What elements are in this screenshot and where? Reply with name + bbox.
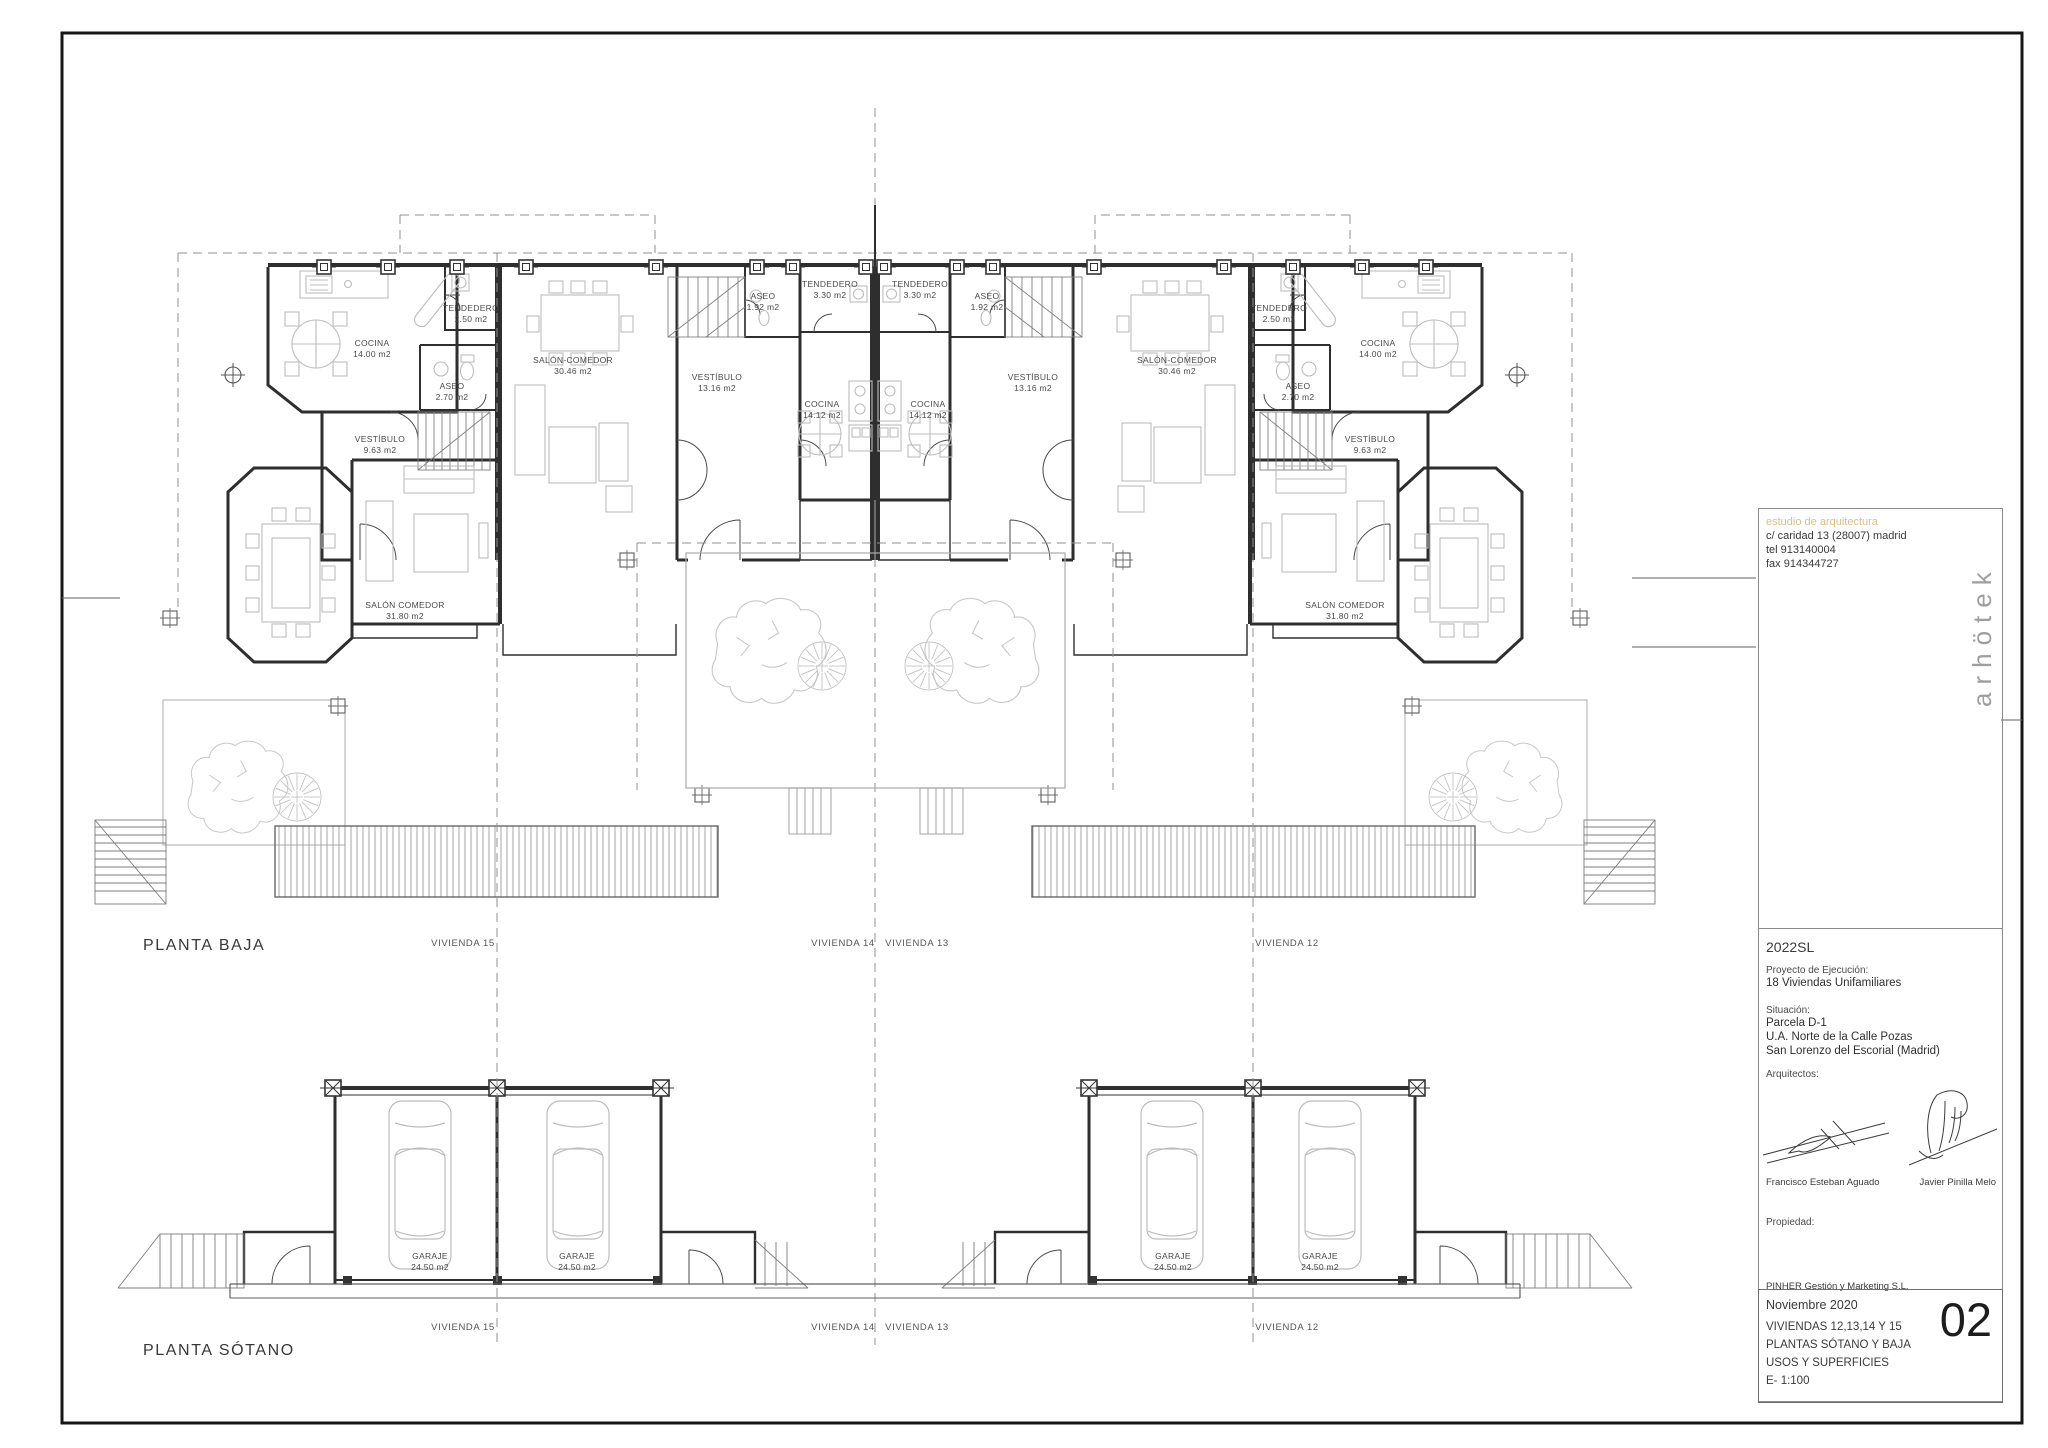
- architect-1-name: Francisco Esteban Aguado: [1766, 1177, 1880, 1188]
- plot-boundary-lines: [62, 578, 2022, 1298]
- project-label: Proyecto de Ejecución:: [1766, 965, 1901, 976]
- room-area: 13.16 m2: [698, 383, 736, 393]
- room-label: COCINA: [1361, 338, 1396, 348]
- sheet-number: 02: [1940, 1292, 1992, 1347]
- exterior-stairs: [95, 820, 166, 904]
- room-area: 13.16 m2: [1014, 383, 1052, 393]
- room-area: 1.92 m2: [971, 302, 1004, 312]
- drawing-line1: VIVIENDAS 12,13,14 Y 15: [1766, 1318, 1911, 1336]
- room-area: 14.12 m2: [803, 410, 841, 420]
- vivienda-label: VIVIENDA 14: [811, 938, 875, 949]
- plan-title-baja: PLANTA BAJA: [143, 937, 265, 954]
- drawing-line2: PLANTAS SÓTANO Y BAJA: [1766, 1336, 1911, 1354]
- garden-plot: [163, 700, 345, 845]
- signature-1: [1763, 1121, 1889, 1163]
- room-area: 9.63 m2: [1354, 445, 1387, 455]
- room-label: SALÓN COMEDOR: [1305, 600, 1384, 610]
- arhotek-logo: arhötek: [1967, 517, 1998, 707]
- room-area: 24.50 m2: [411, 1262, 449, 1272]
- sheet-frame: [62, 33, 2022, 1423]
- room-label: TENDEDERO: [802, 279, 858, 289]
- garden-steps: [789, 788, 963, 834]
- room-label: VESTÍBULO: [1345, 434, 1395, 444]
- room-label: GARAJE: [559, 1251, 595, 1261]
- room-label: TENDEDERO: [1251, 303, 1307, 313]
- room-area: 2.70 m2: [1282, 392, 1315, 402]
- situation-line2: U.A. Norte de la Calle Pozas: [1766, 1030, 1940, 1044]
- title-block: estudio de arquitectura c/ caridad 13 (2…: [1758, 508, 2003, 1402]
- room-area: 30.46 m2: [554, 366, 592, 376]
- floor-plan-drawing: COCINA 14.00 m2 TENDEDERO 2.50 m2 ASEO 2…: [0, 0, 2048, 1448]
- vivienda-label: VIVIENDA 12: [1255, 1322, 1319, 1333]
- room-area: 14.00 m2: [1359, 349, 1397, 359]
- vivienda-label: VIVIENDA 13: [885, 1322, 949, 1333]
- property-label: Propiedad:: [1766, 1217, 1814, 1228]
- room-area: 24.50 m2: [1154, 1262, 1192, 1272]
- project-code: 2022SL: [1766, 939, 1814, 955]
- signatures: [1759, 1081, 2002, 1173]
- room-area: 31.80 m2: [1326, 611, 1364, 621]
- room-label: VESTÍBULO: [355, 434, 405, 444]
- title-block-drawing-info: Noviembre 2020 02 VIVIENDAS 12,13,14 Y 1…: [1758, 1289, 2003, 1403]
- furniture: [246, 270, 872, 637]
- room-label: COCINA: [805, 399, 840, 409]
- vivienda-label: VIVIENDA 15: [431, 1322, 495, 1333]
- vivienda-label: VIVIENDA 13: [885, 938, 949, 949]
- room-area: 2.50 m2: [1263, 314, 1296, 324]
- room-label: ASEO: [751, 291, 776, 301]
- room-label: COCINA: [355, 338, 390, 348]
- room-area: 1.92 m2: [747, 302, 780, 312]
- architect-2-name: Javier Pinilla Melo: [1919, 1177, 1996, 1188]
- room-label: GARAJE: [1302, 1251, 1338, 1261]
- room-label: ASEO: [975, 291, 1000, 301]
- room-area: 9.63 m2: [364, 445, 397, 455]
- studio-tel: tel 913140004: [1766, 543, 1907, 557]
- studio-fax: fax 914344727: [1766, 557, 1907, 571]
- room-area: 30.46 m2: [1158, 366, 1196, 376]
- vivienda-label: VIVIENDA 14: [811, 1322, 875, 1333]
- room-label: ASEO: [1286, 381, 1311, 391]
- room-label: SALÓN-COMEDOR: [1137, 355, 1217, 365]
- room-label: TENDEDERO: [892, 279, 948, 289]
- basement-block: [118, 1080, 808, 1288]
- room-label: TENDEDERO: [443, 303, 499, 313]
- situation-label: Situación:: [1766, 1005, 1940, 1016]
- plan-left-half: [95, 215, 878, 1288]
- vivienda-label: VIVIENDA 12: [1255, 938, 1319, 949]
- studio-name: estudio de arquitectura: [1766, 515, 1907, 529]
- title-block-studio: estudio de arquitectura c/ caridad 13 (2…: [1759, 509, 2002, 928]
- drawing-line3: USOS Y SUPERFICIES: [1766, 1354, 1911, 1372]
- title-block-project: 2022SL Proyecto de Ejecución: 18 Viviend…: [1759, 928, 2002, 1290]
- plan-title-sotano: PLANTA SÓTANO: [143, 1340, 295, 1359]
- room-area: 2.50 m2: [455, 314, 488, 324]
- room-area: 24.50 m2: [558, 1262, 596, 1272]
- room-area: 2.70 m2: [436, 392, 469, 402]
- room-label: VESTÍBULO: [1008, 372, 1058, 382]
- room-label: GARAJE: [412, 1251, 448, 1261]
- drawing-sheet: COCINA 14.00 m2 TENDEDERO 2.50 m2 ASEO 2…: [0, 0, 2048, 1448]
- drawing-scale: E- 1:100: [1766, 1372, 1911, 1390]
- room-area: 24.50 m2: [1301, 1262, 1339, 1272]
- drawing-date: Noviembre 2020: [1766, 1298, 1858, 1312]
- room-label: GARAJE: [1155, 1251, 1191, 1261]
- room-area: 14.00 m2: [353, 349, 391, 359]
- project-name: 18 Viviendas Unifamiliares: [1766, 976, 1901, 990]
- room-label: SALÓN COMEDOR: [365, 600, 444, 610]
- room-label: SALÓN-COMEDOR: [533, 355, 613, 365]
- architects-label: Arquitectos:: [1766, 1069, 1819, 1080]
- room-area: 14.12 m2: [909, 410, 947, 420]
- situation-line1: Parcela D-1: [1766, 1016, 1940, 1030]
- room-area: 31.80 m2: [386, 611, 424, 621]
- studio-address: c/ caridad 13 (28007) madrid: [1766, 529, 1907, 543]
- room-label: COCINA: [911, 399, 946, 409]
- signature-2: [1909, 1091, 1997, 1165]
- room-label: VESTÍBULO: [692, 372, 742, 382]
- situation-line3: San Lorenzo del Escorial (Madrid): [1766, 1044, 1940, 1058]
- room-label: ASEO: [440, 381, 465, 391]
- room-area: 3.30 m2: [814, 290, 847, 300]
- vivienda-label: VIVIENDA 15: [431, 938, 495, 949]
- room-area: 3.30 m2: [904, 290, 937, 300]
